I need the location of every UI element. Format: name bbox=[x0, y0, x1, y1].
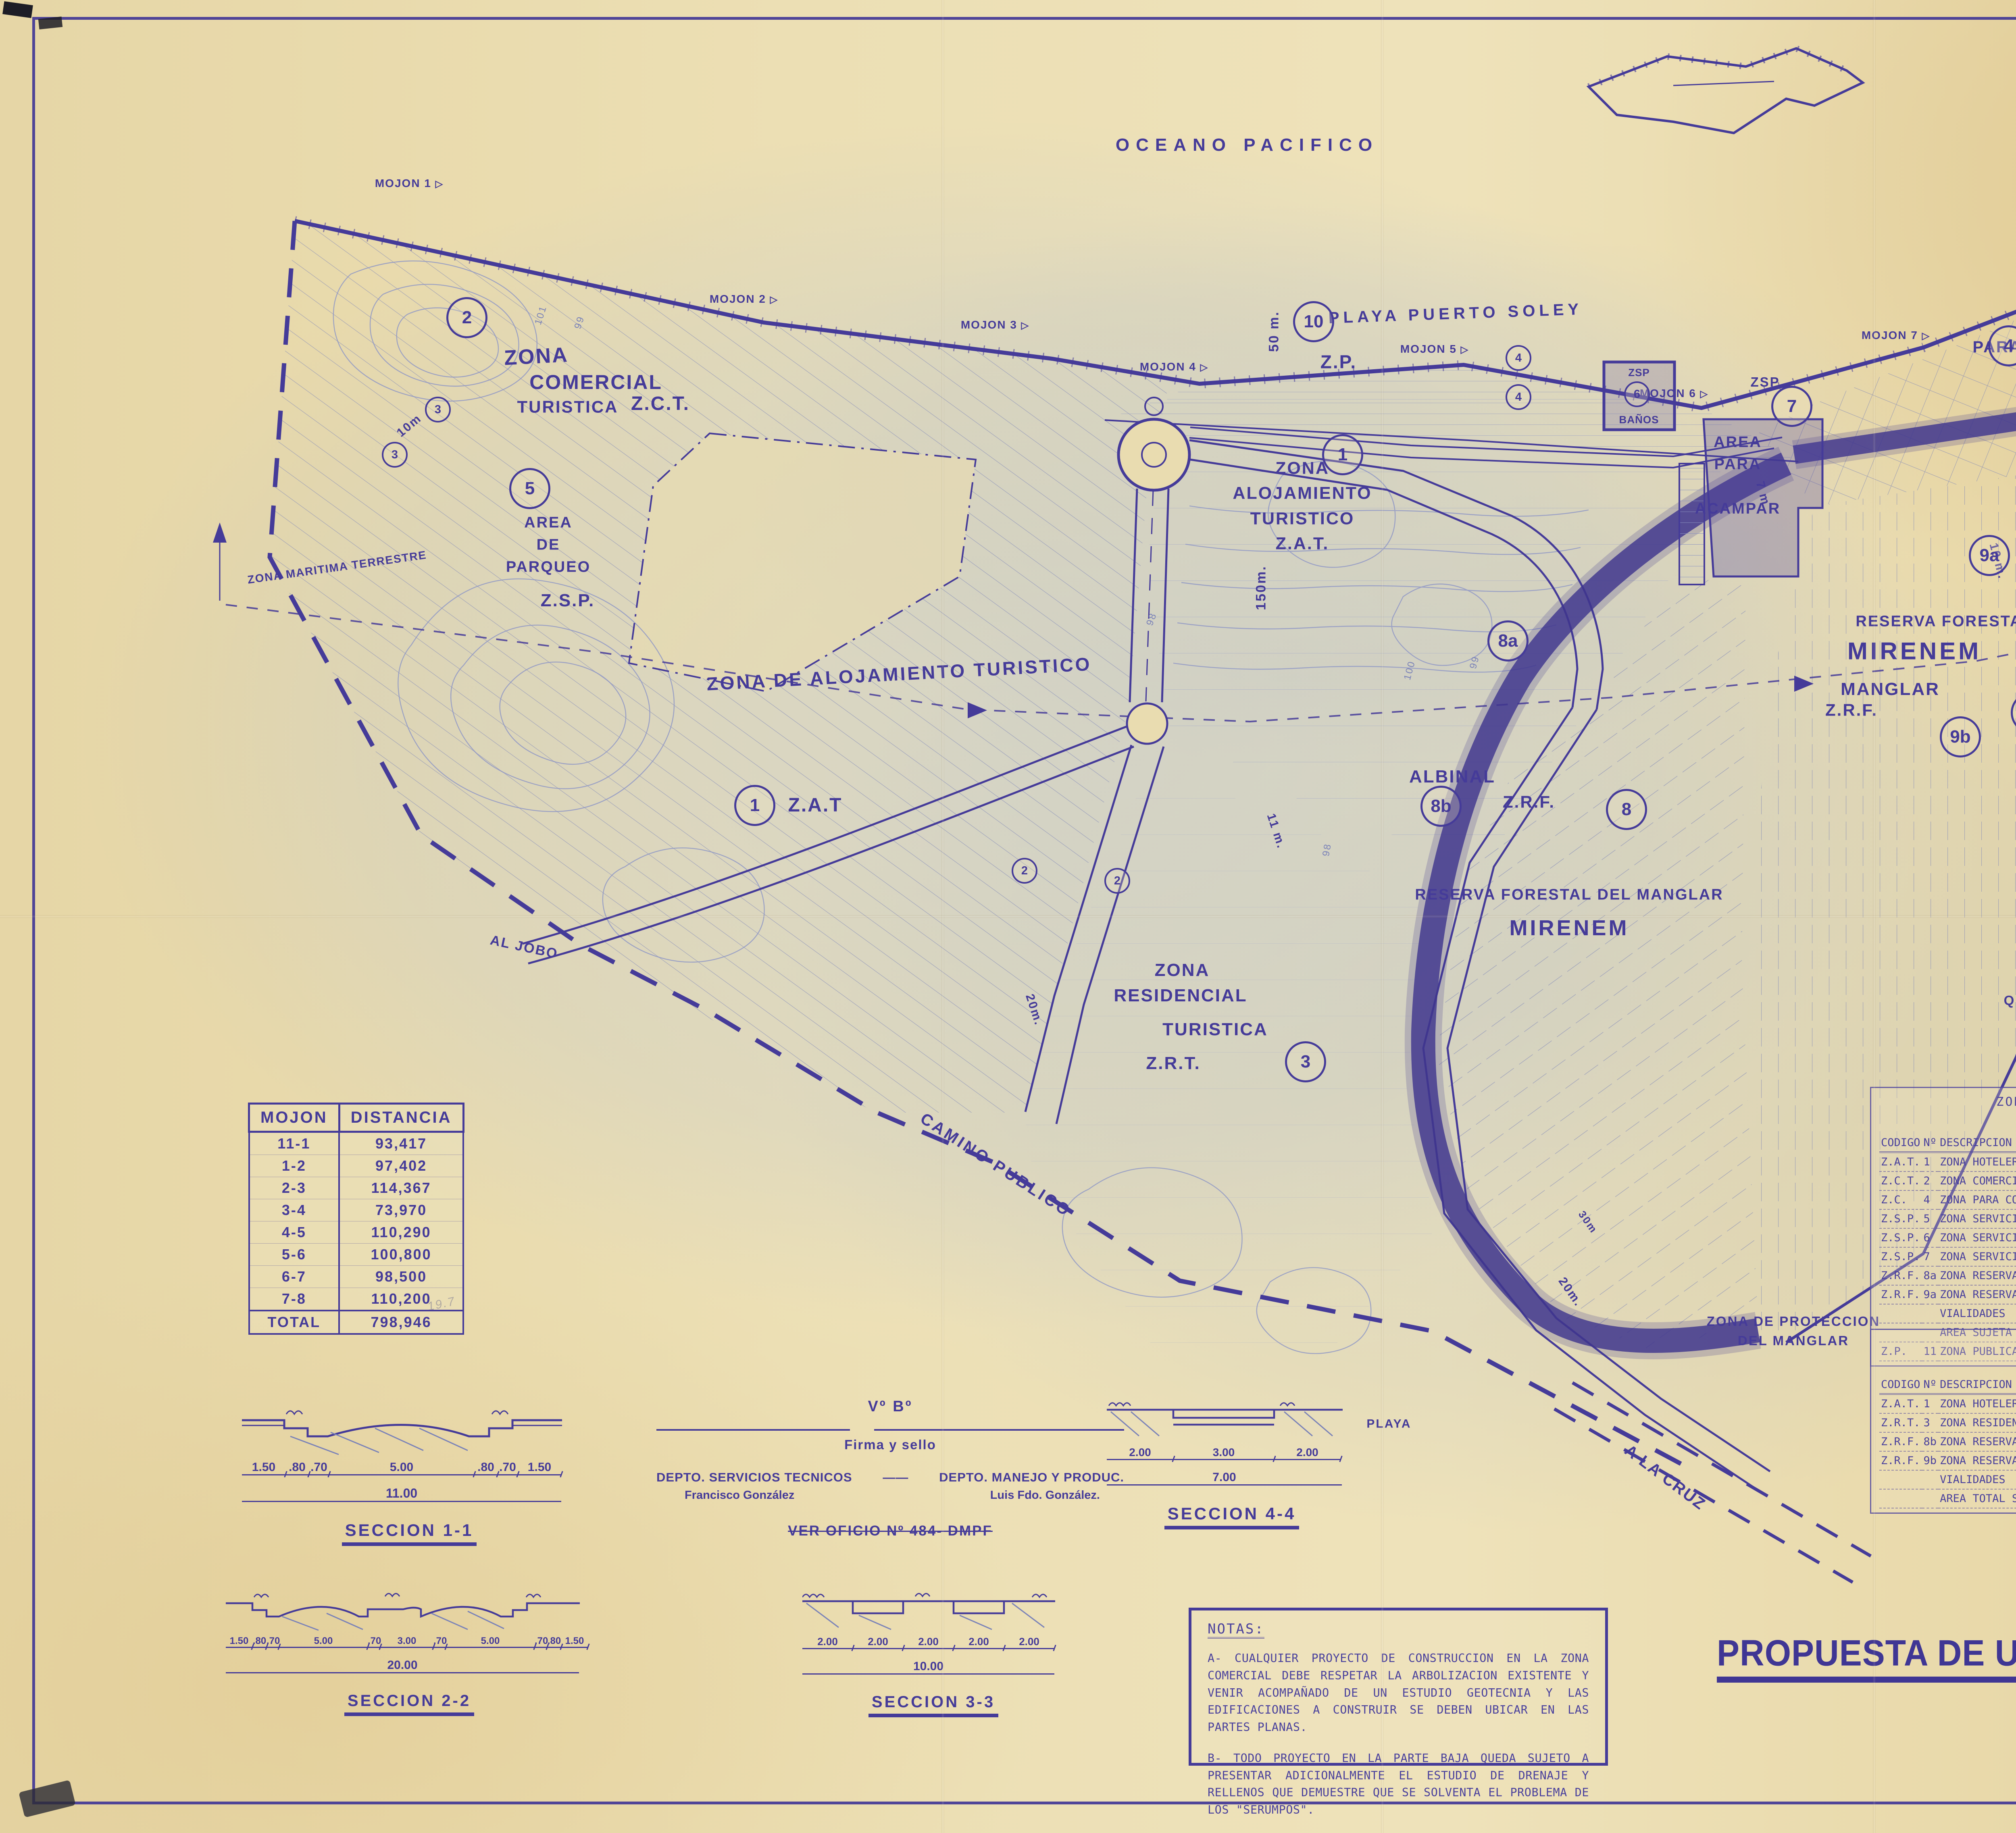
dim-cell: .80 bbox=[252, 1635, 267, 1648]
table-cell: 6 bbox=[1922, 1228, 1939, 1247]
table-cell: ZONA SERVICIOS PUBLICOS (AREA ACAMPAR) bbox=[1938, 1247, 2016, 1266]
section-2-2: 1.50 .80 .70 5.00 .70 3.00 .70 5.00 .70 … bbox=[226, 1585, 593, 1716]
table-row: Z.S.P.6ZONA SERVICIOS PUBLICOS (BAÑOS)0.… bbox=[1879, 1228, 2016, 1247]
table-row: Z.S.P.5ZONA SERVICIOS PUBLICOS (PARQUEOS… bbox=[1879, 1209, 2016, 1228]
mojon-distance-table: MOJON DISTANCIA 11-193,4171-297,4022-311… bbox=[248, 1103, 464, 1335]
oficio-label: VER OFICIO Nº 484- DMPF bbox=[656, 1523, 1124, 1539]
table-cell: AREA TOTAL SUJETA A PLAN REGULADOR bbox=[1938, 1489, 2016, 1508]
mojon-7-text: MOJON 7 bbox=[1862, 329, 1918, 341]
parqueo-label: AREA DE PARQUEO bbox=[506, 512, 591, 578]
mojon-2-text: MOJON 2 bbox=[710, 293, 766, 305]
marker-road-2b: 2 bbox=[1104, 868, 1130, 894]
acampar-label: AREA PARA ACAMPAR bbox=[1695, 431, 1781, 520]
table-cell: Z.R.F. bbox=[1879, 1432, 1922, 1451]
table-cell: ZONA COMERCIAL TURISTICA bbox=[1938, 1171, 2016, 1190]
private-area-table: ZONA PRIVADA RESUMEN DE AREAS CODIGO Nº … bbox=[1870, 1329, 2016, 1514]
dim-cell: 1.50 bbox=[518, 1461, 561, 1475]
dim-cell: 1.50 bbox=[242, 1461, 285, 1475]
main-title-underline bbox=[1717, 1677, 2016, 1683]
mojon-1-label: MOJON 1 ▷ bbox=[375, 177, 444, 190]
zrf-code-8: Z.R.F. bbox=[1503, 790, 1555, 815]
mojon-flag-icon: ▷ bbox=[1700, 389, 1708, 399]
mojon-3-label: MOJON 3 ▷ bbox=[961, 318, 1029, 331]
table-row: 3-473,970 bbox=[249, 1199, 464, 1221]
ocean-label: OCEANO PACIFICO bbox=[1116, 132, 1379, 158]
dim-cell: .80 bbox=[285, 1461, 309, 1475]
zsp-box-label: ZSP bbox=[1628, 365, 1650, 381]
table-cell: ZONA SERVICIOS PUBLICOS (BAÑOS) bbox=[1938, 1228, 2016, 1247]
table-cell: 73,970 bbox=[339, 1199, 463, 1221]
main-title-text: PROPUESTA DE USO DEL SUELO, Y VIALIDADES bbox=[1717, 1632, 2016, 1674]
marker-zone-7: 7 bbox=[1771, 386, 1812, 427]
table-cell: ZONA RESIDENCIAL bbox=[1938, 1413, 2016, 1432]
mojon-2-label: MOJON 2 ▷ bbox=[710, 293, 778, 306]
marker-zone-9b: 9b bbox=[1940, 716, 1981, 757]
table-cell: VIALIDADES bbox=[1938, 1470, 2016, 1489]
table-cell: 9b bbox=[1922, 1451, 1939, 1470]
table-cell: 2 bbox=[1922, 1171, 1939, 1190]
table-cell: 4 bbox=[1922, 1190, 1939, 1209]
albinal-label: ALBINAL bbox=[1409, 764, 1495, 790]
marker-road-3a: 3 bbox=[425, 397, 451, 422]
note-a: A- CUALQUIER PROYECTO DE CONSTRUCCION EN… bbox=[1208, 1650, 1589, 1736]
marker-zone-2: 2 bbox=[446, 297, 487, 338]
residencial-line1: ZONA bbox=[1155, 957, 1210, 983]
table-cell: Z.A.T. bbox=[1879, 1394, 1922, 1413]
table-cell: 1 bbox=[1922, 1394, 1939, 1413]
mojon-4-text: MOJON 4 bbox=[1140, 360, 1196, 373]
signature-lines bbox=[656, 1429, 1124, 1431]
section-total: 20.00 bbox=[226, 1658, 579, 1673]
dim-cell: .70 bbox=[535, 1635, 547, 1648]
zp-label: Z.P. bbox=[1320, 349, 1357, 376]
prot-manglar-bottom-label: ZONA DE PROTECCION DEL MANGLAR bbox=[1707, 1312, 1880, 1350]
mojon-7-label: MOJON 7 ▷ bbox=[1862, 329, 1930, 342]
table-cell bbox=[1922, 1489, 1939, 1508]
table-cell: Z.R.F. bbox=[1879, 1266, 1922, 1285]
marker-road-4b: 4 bbox=[1506, 384, 1531, 410]
section-3-3: 2.00 2.00 2.00 2.00 2.00 10.00 SECCION 3… bbox=[802, 1585, 1064, 1717]
main-title-block: PROPUESTA DE USO DEL SUELO, Y VIALIDADES bbox=[1717, 1633, 2016, 1683]
reserva-line-center: RESERVA FORESTAL DEL MANGLAR bbox=[1415, 884, 1723, 906]
table-cell: ZONA HOTELERA bbox=[1938, 1394, 2016, 1413]
table-row: Z.R.F.8bZONA RESERVA FORESTAL (REGULADO … bbox=[1879, 1432, 2016, 1451]
table-cell: ZONA PARA COOPERATIVAS bbox=[1938, 1190, 2016, 1209]
dim-cell: 5.00 bbox=[279, 1635, 368, 1648]
table-row: Z.R.T.3ZONA RESIDENCIAL3.9030.95 bbox=[1879, 1413, 2016, 1432]
table-cell: 1-2 bbox=[249, 1155, 339, 1177]
mirenem-big-center: MIRENEM bbox=[1510, 912, 1629, 944]
section-3-3-drawing bbox=[802, 1585, 1055, 1633]
notes-heading: NOTAS: bbox=[1208, 1621, 1264, 1639]
zrf-code-9: Z.R.F. bbox=[1825, 698, 1878, 723]
table-cell: 5 bbox=[1922, 1209, 1939, 1228]
mojon-3-text: MOJON 3 bbox=[961, 318, 1017, 331]
table-cell: ZONA RESERVA FORESTAL (REGULADO POR MIRE… bbox=[1938, 1432, 2016, 1451]
dim-cell: .70 bbox=[267, 1635, 279, 1648]
marker-zone-9a: 9a bbox=[1969, 535, 2010, 576]
mojon-6-label: MOJON 6 ▷ bbox=[1640, 387, 1708, 400]
marker-road-3b: 3 bbox=[382, 442, 408, 468]
table-cell: 97,402 bbox=[339, 1155, 463, 1177]
table-row: Z.R.F.9aZONA RESERVA FORESTAL (A CEDER A… bbox=[1879, 1285, 2016, 1304]
table-cell: 4-5 bbox=[249, 1221, 339, 1244]
playa-section-label: PLAYA bbox=[1366, 1415, 1411, 1433]
table-row: 5-6100,800 bbox=[249, 1244, 464, 1266]
table-cell: Z.C. bbox=[1879, 1190, 1922, 1209]
table-row: Z.C.4ZONA PARA COOPERATIVAS0.907.62 bbox=[1879, 1190, 2016, 1209]
section-4-4-drawing bbox=[1107, 1396, 1343, 1444]
marker-road-2a: 2 bbox=[1012, 858, 1037, 884]
section-4-4: 2.00 3.00 2.00 7.00 SECCION 4-4 PLAYA bbox=[1107, 1396, 1357, 1529]
note-b: B- TODO PROYECTO EN LA PARTE BAJA QUEDA … bbox=[1208, 1750, 1589, 1819]
zone-comercial-line3: TURISTICA bbox=[517, 395, 619, 420]
firma-sello-label: Firma y sello bbox=[656, 1437, 1124, 1452]
contour-98a: 98 bbox=[1319, 842, 1335, 857]
table-row: Z.A.T.1ZONA HOTELERA3.0824.44 bbox=[1879, 1394, 2016, 1413]
dept-right-label: DEPTO. MANEJO Y PRODUC. bbox=[939, 1470, 1124, 1485]
table-row: 4-5110,290 bbox=[249, 1221, 464, 1244]
dept-left-label: DEPTO. SERVICIOS TECNICOS bbox=[656, 1470, 852, 1485]
vobo-label: Vº Bº bbox=[656, 1398, 1124, 1415]
marker-zone-1-west: 1 bbox=[734, 785, 775, 826]
table-cell: 11-1 bbox=[249, 1132, 339, 1155]
mirenem-big-right: MIRENEM bbox=[1847, 634, 1981, 669]
table-cell: Z.R.T. bbox=[1879, 1413, 1922, 1432]
table-cell: ZONA HOTELERA bbox=[1938, 1152, 2016, 1171]
distancia-col-header: DISTANCIA bbox=[339, 1104, 463, 1132]
dim-cell: 2.00 bbox=[1004, 1635, 1054, 1649]
table-cell: 8a bbox=[1922, 1266, 1939, 1285]
table-cell bbox=[1879, 1470, 1922, 1489]
dim-cell: .70 bbox=[309, 1461, 329, 1475]
quebrada-label: QUEBRADA DE AGUA S.A. bbox=[2004, 991, 2016, 1010]
table-row: Z.R.F.8aZONA RESERVA FORESTAL (REGULADO … bbox=[1879, 1266, 2016, 1285]
zmt-area-table: ZONA MARITIMO TERRESTRE RESUMEN DE AREAS… bbox=[1870, 1087, 2016, 1367]
table-cell: 114,367 bbox=[339, 1177, 463, 1199]
marker-zone-10: 10 bbox=[1293, 301, 1334, 342]
section-1-1: 1.50 .80 .70 5.00 .80 .70 1.50 11.00 SEC… bbox=[242, 1398, 577, 1546]
table-cell: ZONA RESERVA FORESTAL (A CEDER A MIRENEM… bbox=[1938, 1285, 2016, 1304]
table-cell: 3-4 bbox=[249, 1199, 339, 1221]
marker-zone-3: 3 bbox=[1285, 1041, 1326, 1082]
mojon-flag-icon: ▷ bbox=[770, 294, 778, 305]
table-cell: Z.S.P. bbox=[1879, 1209, 1922, 1228]
marker-zone-5: 5 bbox=[509, 468, 550, 509]
dim-cell: .80 bbox=[474, 1461, 498, 1475]
table-row: VIALIDADES0.403.17 bbox=[1879, 1470, 2016, 1489]
marker-zone-8a: 8a bbox=[1487, 620, 1529, 662]
mojon-5-text: MOJON 5 bbox=[1400, 343, 1457, 355]
table-row: Z.A.T.1ZONA HOTELERA5.2544.45 bbox=[1879, 1152, 2016, 1171]
table-cell: VIALIDADES bbox=[1938, 1304, 2016, 1323]
dim-cell: 5.00 bbox=[446, 1635, 535, 1648]
table-cell: ZONA SERVICIOS PUBLICOS (PARQUEOS) bbox=[1938, 1209, 2016, 1228]
dim-cell: 1.50 bbox=[226, 1635, 252, 1648]
section-2-2-drawing bbox=[226, 1585, 580, 1633]
notes-box: NOTAS: A- CUALQUIER PROYECTO DE CONSTRUC… bbox=[1189, 1608, 1608, 1766]
table-cell: Z.R.F. bbox=[1879, 1451, 1922, 1470]
table-row: 1-297,402 bbox=[249, 1155, 464, 1177]
table-cell: Z.C.T. bbox=[1879, 1171, 1922, 1190]
dim-cell: .70 bbox=[368, 1635, 380, 1648]
col-codigo: CODIGO bbox=[1879, 1376, 1922, 1394]
table-row: 7-8110,200 bbox=[249, 1288, 464, 1311]
mojon-flag-icon: ▷ bbox=[1200, 362, 1208, 373]
table-cell: 7-8 bbox=[249, 1288, 339, 1311]
table-cell: ZONA RESERVA FORESTAL (REGULADO POR MIRE… bbox=[1938, 1266, 2016, 1285]
zmt-table-title: ZONA MARITIMO TERRESTRE RESUMEN DE AREAS bbox=[1879, 1094, 2016, 1128]
section-4-4-label: SECCION 4-4 bbox=[1164, 1504, 1300, 1529]
mojon-total-value: 798,946 bbox=[339, 1311, 463, 1334]
zsp-code-label: Z.S.P. bbox=[541, 588, 595, 614]
table-cell: Z.S.P. bbox=[1879, 1247, 1922, 1266]
mojon-flag-icon: ▷ bbox=[1461, 344, 1469, 355]
table-row: 2-3114,367 bbox=[249, 1177, 464, 1199]
dim-cell: 3.00 bbox=[380, 1635, 433, 1648]
table-cell: 110,200 bbox=[339, 1288, 463, 1311]
col-descripcion: DESCRIPCION bbox=[1938, 1376, 2016, 1394]
mojon-4-label: MOJON 4 ▷ bbox=[1140, 360, 1208, 373]
signature-line-left bbox=[656, 1429, 850, 1431]
table-cell: 3 bbox=[1922, 1413, 1939, 1432]
name-left-label: Francisco González bbox=[685, 1489, 794, 1502]
mojon-total-label: TOTAL bbox=[249, 1311, 339, 1334]
table-row: 11-193,417 bbox=[249, 1132, 464, 1155]
dim-50m-label: 50 m. bbox=[1264, 311, 1284, 352]
dim-cell: .70 bbox=[433, 1635, 446, 1648]
marker-zone-1-center: 1 bbox=[1322, 434, 1363, 475]
table-cell: Z.S.P. bbox=[1879, 1228, 1922, 1247]
section-total: 10.00 bbox=[802, 1660, 1054, 1675]
section-1-1-drawing bbox=[242, 1398, 562, 1458]
dim-cell: .70 bbox=[498, 1461, 518, 1475]
col-numero: Nº bbox=[1922, 1134, 1939, 1152]
reserva-line-right: RESERVA FORESTAL DEL MANGLAR bbox=[1856, 610, 2016, 632]
approval-block: Vº Bº Firma y sello DEPTO. SERVICIOS TEC… bbox=[656, 1398, 1124, 1539]
table-cell: 7 bbox=[1922, 1247, 1939, 1266]
dim-cell: 5.00 bbox=[329, 1461, 474, 1475]
table-cell: 98,500 bbox=[339, 1266, 463, 1288]
mojon-5-label: MOJON 5 ▷ bbox=[1400, 343, 1469, 356]
table-cell bbox=[1879, 1489, 1922, 1508]
table-cell: Z.A.T. bbox=[1879, 1152, 1922, 1171]
zrt-code-label: Z.R.T. bbox=[1146, 1051, 1200, 1076]
table-cell: 93,417 bbox=[339, 1132, 463, 1155]
table-row: VIALIDADES0.605.08 bbox=[1879, 1304, 2016, 1323]
residencial-line2: RESIDENCIAL bbox=[1114, 983, 1247, 1009]
name-right-label: Luis Fdo. González. bbox=[990, 1489, 1100, 1502]
table-cell: 2-3 bbox=[249, 1177, 339, 1199]
blueprint-sheet: PLANEAMIENTO Y DESARROLLO • I.C.T. OCEAN… bbox=[0, 0, 2016, 1833]
table-cell: ZONA RESERVA FORESTAL (A CEDER A MIRENEM… bbox=[1938, 1451, 2016, 1470]
zsp-small-label: ZSP. bbox=[1750, 372, 1783, 392]
table-cell bbox=[1879, 1304, 1922, 1323]
section-2-2-label: SECCION 2-2 bbox=[344, 1692, 474, 1716]
table-cell: 6-7 bbox=[249, 1266, 339, 1288]
residencial-line3: TURISTICA bbox=[1162, 1017, 1268, 1042]
dim-150m-label: 150m. bbox=[1251, 565, 1271, 610]
zct-code-label: Z.C.T. bbox=[631, 390, 690, 418]
table-row: 6-798,500 bbox=[249, 1266, 464, 1288]
table-cell: 8b bbox=[1922, 1432, 1939, 1451]
dim-cell: 2.00 bbox=[903, 1635, 954, 1649]
table-row: Z.R.F.9bZONA RESERVA FORESTAL (A CEDER A… bbox=[1879, 1451, 2016, 1470]
dim-cell: 2.00 bbox=[853, 1635, 903, 1649]
marker-zone-8: 8 bbox=[1606, 789, 1647, 830]
table-cell: 100,800 bbox=[339, 1244, 463, 1266]
table-row: Z.S.P.7ZONA SERVICIOS PUBLICOS (AREA ACA… bbox=[1879, 1247, 2016, 1266]
marker-zone-6: 6 bbox=[1624, 381, 1650, 407]
section-3-3-label: SECCION 3-3 bbox=[868, 1693, 998, 1717]
table-cell: 5-6 bbox=[249, 1244, 339, 1266]
dim-cell: 3.00 bbox=[1173, 1446, 1274, 1460]
table-cell: 9a bbox=[1922, 1285, 1939, 1304]
mojon-flag-icon: ▷ bbox=[1021, 320, 1029, 331]
mojon-col-header: MOJON bbox=[249, 1104, 339, 1132]
dim-cell: .80 bbox=[547, 1635, 561, 1648]
mojon-flag-icon: ▷ bbox=[1922, 331, 1930, 341]
table-cell bbox=[1922, 1304, 1939, 1323]
section-1-1-label: SECCION 1-1 bbox=[342, 1521, 477, 1546]
col-codigo: CODIGO bbox=[1879, 1134, 1922, 1152]
col-numero: Nº bbox=[1922, 1376, 1939, 1394]
marker-zone-8b: 8b bbox=[1420, 786, 1462, 827]
signature-line-right bbox=[874, 1429, 1124, 1431]
table-cell: 1 bbox=[1922, 1152, 1939, 1171]
zat-code-left-label: Z.A.T bbox=[788, 791, 843, 820]
table-row: Z.C.T.2ZONA COMERCIAL TURISTICA0.887.45 bbox=[1879, 1171, 2016, 1190]
banos-label: BAÑOS bbox=[1619, 412, 1659, 428]
dim-cell: 1.50 bbox=[561, 1635, 588, 1648]
table-cell: Z.R.F. bbox=[1879, 1285, 1922, 1304]
dim-cell: 2.00 bbox=[802, 1635, 853, 1649]
table-cell bbox=[1922, 1470, 1939, 1489]
dim-cell: 2.00 bbox=[954, 1635, 1004, 1649]
col-descripcion: DESCRIPCION bbox=[1938, 1134, 2016, 1152]
dept-divider: —— bbox=[883, 1470, 908, 1485]
table-cell: 110,290 bbox=[339, 1221, 463, 1244]
section-total: 11.00 bbox=[242, 1486, 561, 1502]
dim-cell: 2.00 bbox=[1274, 1446, 1341, 1460]
mojon-1-text: MOJON 1 bbox=[375, 177, 431, 189]
section-total: 7.00 bbox=[1107, 1471, 1342, 1486]
private-table-title: ZONA PRIVADA RESUMEN DE AREAS bbox=[1879, 1336, 2016, 1369]
table-row: AREA TOTAL SUJETA A PLAN REGULADOR12.601… bbox=[1879, 1489, 2016, 1508]
marker-road-4a: 4 bbox=[1506, 345, 1531, 371]
mojon-flag-icon: ▷ bbox=[435, 179, 444, 189]
